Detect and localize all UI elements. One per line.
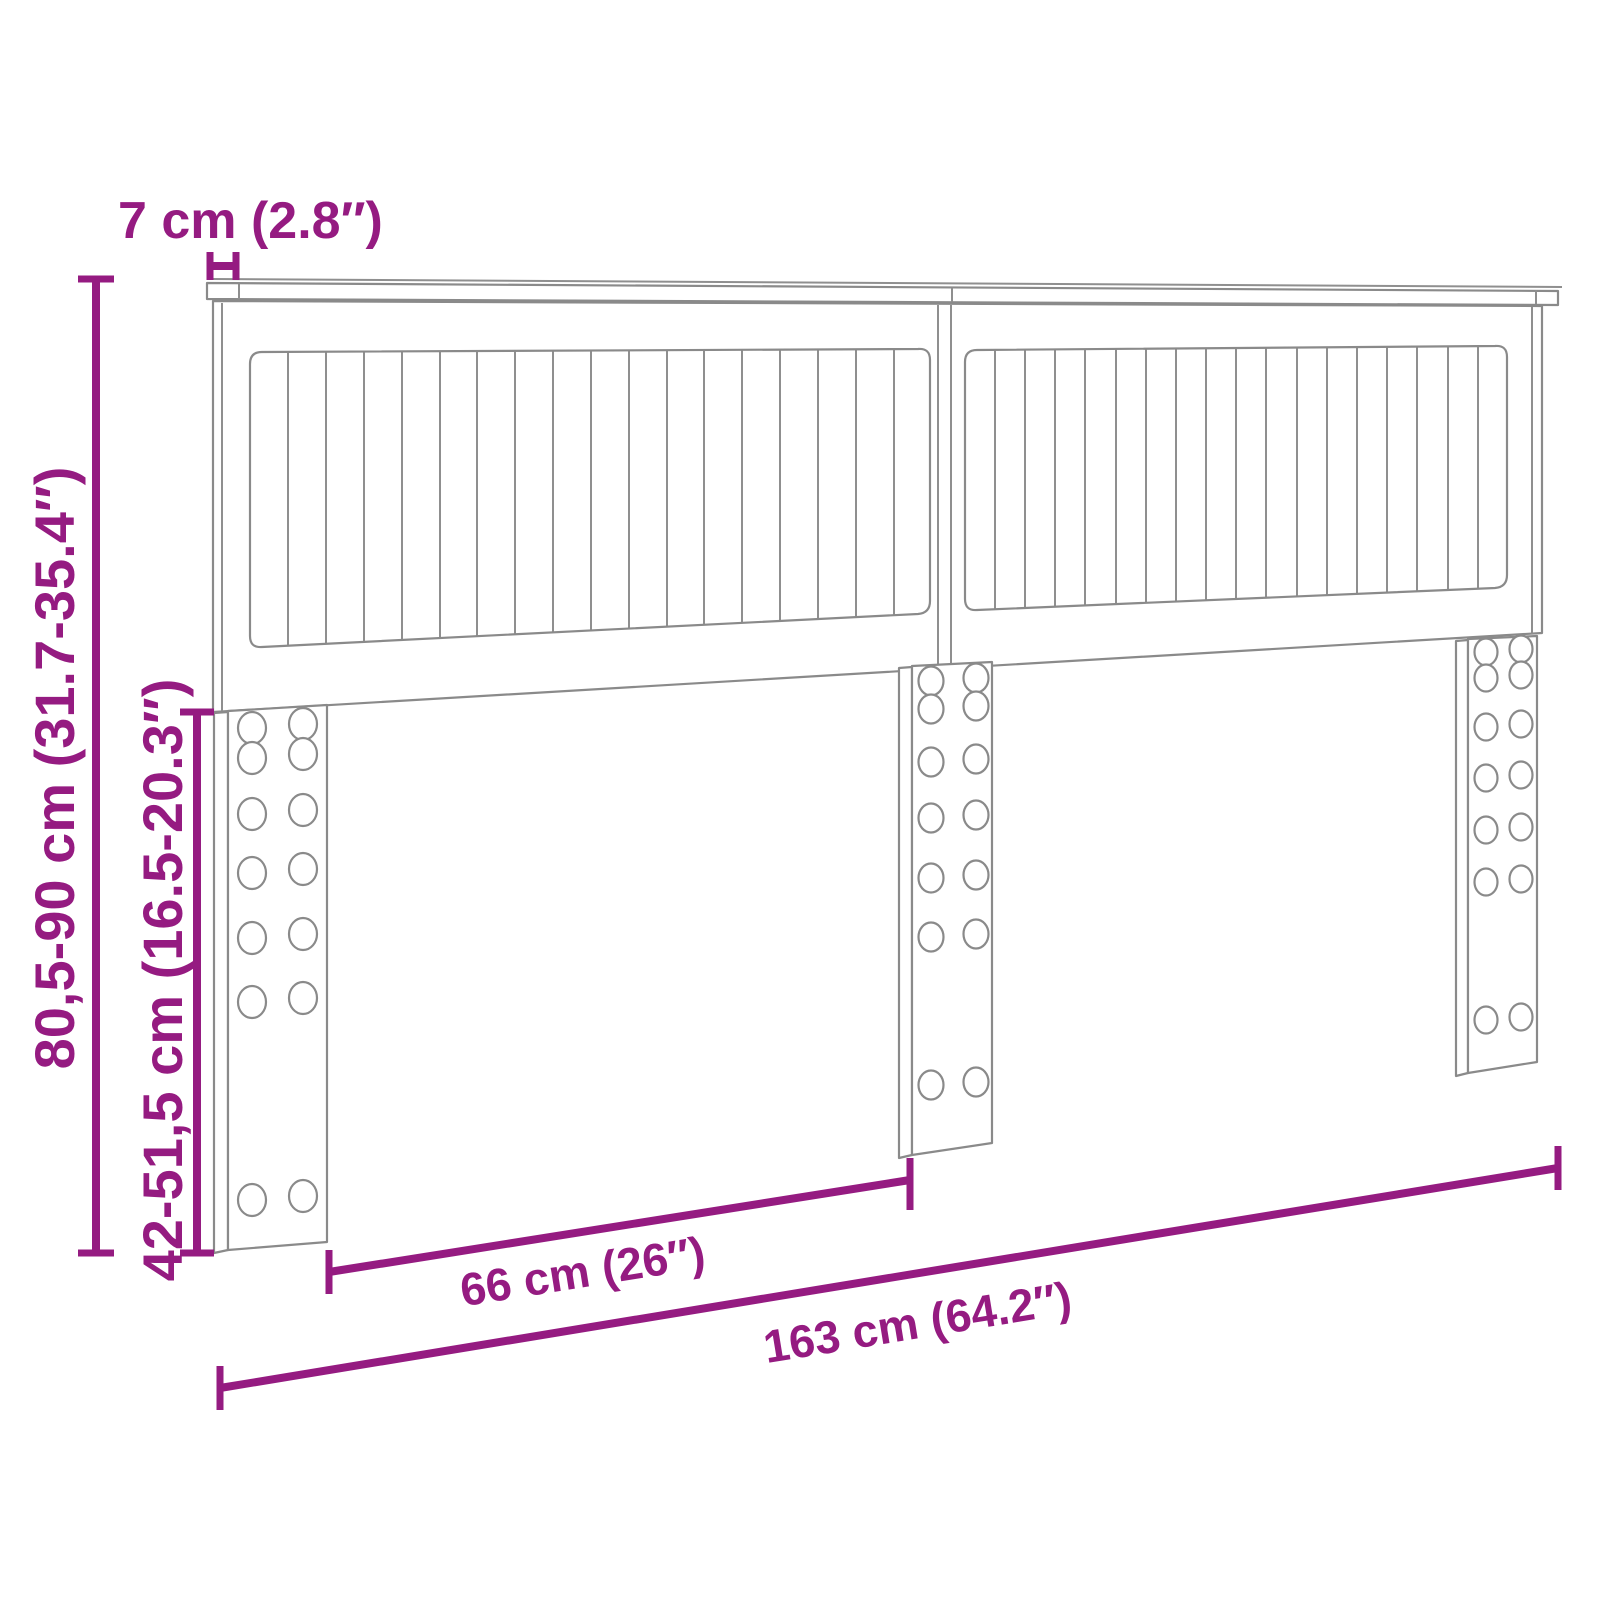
product-dimension-diagram: 7 cm (2.8″) 80,5-90 cm (31.7-35.4″) 42-5… — [0, 0, 1600, 1600]
dim-top-thickness-label: 7 cm (2.8″) — [118, 192, 383, 250]
dim-total-width-line — [220, 1168, 1558, 1388]
headboard-drawing: 7 cm (2.8″) 80,5-90 cm (31.7-35.4″) 42-5… — [0, 0, 1600, 1600]
dim-total-height-label: 80,5-90 cm (31.7-35.4″) — [23, 467, 86, 1070]
left-leg — [214, 705, 327, 1253]
middle-leg — [899, 662, 992, 1158]
headboard-panel — [213, 301, 1542, 712]
middle-leg-side-face — [899, 667, 912, 1158]
dim-total-height: 80,5-90 cm (31.7-35.4″) — [23, 279, 114, 1253]
dim-leg-height: 42-51,5 cm (16.5-20.3″) — [131, 679, 214, 1282]
dim-leg-gap-label: 66 cm (26″) — [456, 1226, 708, 1316]
right-leg — [1456, 636, 1537, 1077]
headboard-panel-face — [213, 301, 1542, 712]
dim-leg-height-label: 42-51,5 cm (16.5-20.3″) — [131, 679, 194, 1282]
dim-total-width-label: 163 cm (64.2″) — [760, 1271, 1075, 1373]
right-leg-side-face — [1456, 640, 1468, 1076]
dim-top-thickness: 7 cm (2.8″) — [118, 192, 383, 280]
left-leg-front-face — [228, 705, 327, 1250]
left-leg-side-face — [214, 712, 228, 1253]
